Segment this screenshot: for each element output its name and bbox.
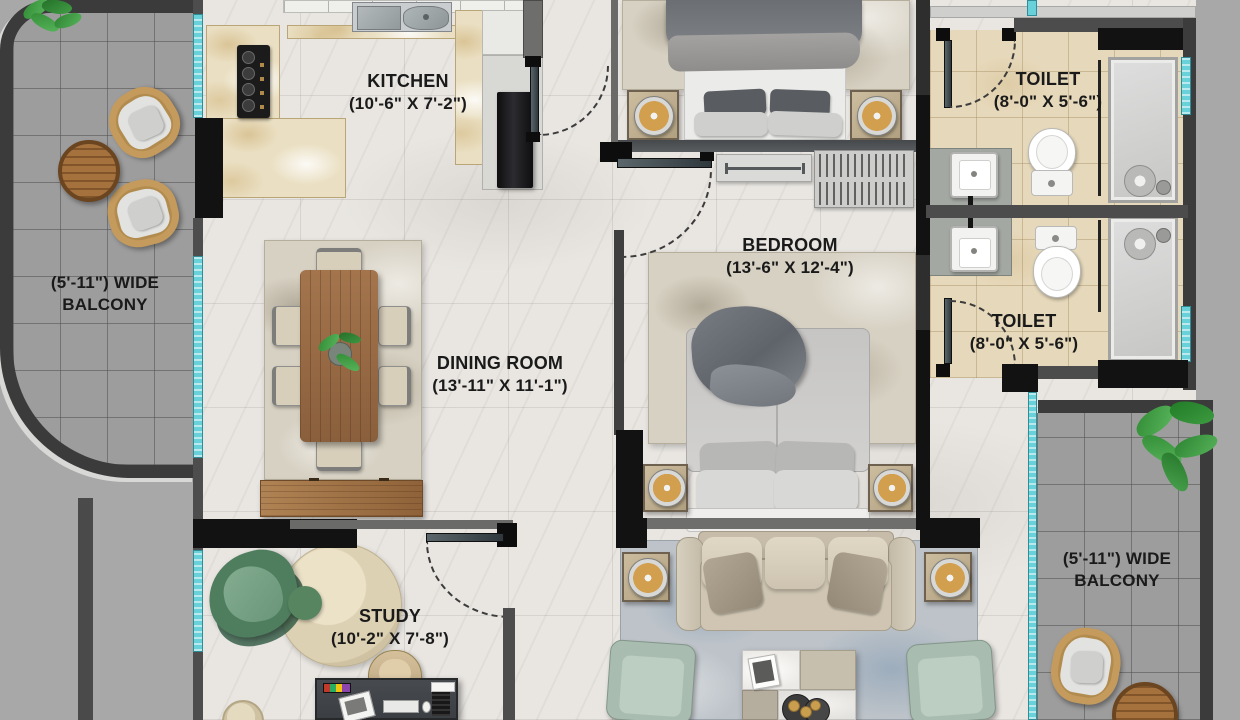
wall-segment	[926, 205, 1188, 218]
throw-pillow	[702, 551, 765, 616]
floor-plan-canvas: KITCHEN (10'-6" X 7'-2") BEDROOM (13'-6"…	[0, 0, 1240, 720]
wall-segment	[195, 118, 223, 218]
basin-drain	[971, 171, 977, 177]
keyboard	[383, 700, 419, 713]
room-dims: (13'-11" X 11'-1")	[420, 375, 580, 397]
kitchen-label: KITCHEN (10'-6" X 7'-2")	[328, 70, 488, 115]
bed-blanket-fold	[668, 32, 861, 71]
cup	[788, 700, 800, 712]
shower-knob	[1156, 180, 1171, 195]
wash-basin	[950, 226, 998, 272]
room-name: TOILET	[968, 68, 1128, 91]
sink-drain	[423, 14, 429, 20]
cup	[810, 700, 821, 711]
door-hinge	[526, 132, 540, 142]
bed-top	[666, 0, 862, 140]
shower-screen	[1098, 220, 1101, 312]
shower-knob	[1156, 228, 1171, 243]
coffee-table-panel	[742, 690, 778, 720]
gas-stove	[237, 45, 270, 118]
shower-drain-head	[1124, 228, 1156, 260]
room-name: KITCHEN	[328, 70, 488, 93]
sideboard-handle	[379, 478, 389, 481]
balcony-line2: BALCONY	[22, 294, 188, 316]
dining-chair	[378, 306, 411, 346]
entry-door-leaf	[530, 66, 539, 136]
bed-pillow	[774, 470, 858, 512]
wardrobe-console	[716, 154, 812, 182]
balcony-right-label: (5'-11") WIDE BALCONY	[1037, 548, 1197, 592]
desk-paper	[431, 682, 455, 692]
armchair-seat	[917, 655, 983, 717]
photo-image	[752, 660, 774, 684]
table-plant	[328, 342, 352, 366]
dining-chair	[316, 438, 362, 471]
bed-main	[686, 306, 868, 532]
dining-label: DINING ROOM (13'-11" X 11'-1")	[420, 352, 580, 397]
throw-pillow	[826, 551, 889, 616]
sink-basin-left	[357, 6, 401, 30]
kitchen-sink	[352, 2, 452, 32]
wc-seat	[1036, 135, 1068, 169]
window-glass	[1181, 57, 1191, 115]
armchair	[605, 639, 696, 720]
room-name: TOILET	[944, 310, 1104, 333]
door-leaf	[426, 533, 504, 542]
room-dims: (8'-0" X 5'-6")	[968, 91, 1128, 113]
room-name: DINING ROOM	[420, 352, 580, 375]
console-handle-cap	[725, 163, 728, 174]
wash-basin	[950, 152, 998, 198]
wall-segment	[611, 0, 618, 142]
pen-tray	[323, 683, 351, 693]
console-handle-cap	[802, 163, 805, 174]
door-hinge	[700, 152, 714, 161]
wall-segment	[1098, 28, 1186, 50]
shower-drain-head	[1124, 165, 1156, 197]
kitchen-counter-corner	[206, 118, 346, 198]
window-glass	[193, 550, 203, 652]
mouse	[422, 701, 431, 713]
wc-flush-button	[1048, 180, 1055, 187]
sideboard-handle	[309, 478, 319, 481]
wall-segment	[930, 6, 1196, 18]
stove-knobs	[260, 53, 264, 109]
burner	[242, 67, 255, 80]
toilet-mid-label: TOILET (8'-0" X 5'-6")	[944, 310, 1104, 355]
study-label: STUDY (10'-2" X 7'-8")	[310, 605, 470, 650]
table-lamp	[857, 96, 897, 136]
toilet-wc	[1033, 246, 1081, 298]
balcony-line1: (5'-11") WIDE	[1037, 548, 1197, 570]
bedroom-label: BEDROOM (13'-6" X 12'-4")	[700, 234, 880, 279]
outdoor-round-table	[58, 140, 120, 202]
wall-segment	[617, 518, 647, 548]
room-name: BEDROOM	[700, 234, 880, 257]
wall-segment	[523, 0, 543, 58]
rack-slats-row	[819, 154, 909, 177]
slatted-rack	[814, 150, 914, 208]
wall-segment	[503, 608, 515, 720]
toilet-wc	[1028, 128, 1076, 176]
coffee-table	[742, 650, 856, 720]
table-lamp	[628, 558, 668, 598]
photo-frame	[747, 654, 780, 690]
wall-segment	[916, 95, 930, 255]
table-lamp	[648, 469, 686, 507]
bed-pillow	[696, 470, 778, 512]
window-glass	[193, 14, 203, 118]
sofa-cushion	[765, 537, 825, 589]
table-lamp	[873, 469, 911, 507]
bed-pillow	[694, 112, 768, 136]
room-name: STUDY	[310, 605, 470, 628]
balcony-line2: BALCONY	[1037, 570, 1197, 592]
bed-pillow	[768, 111, 843, 138]
room-dims: (13'-6" X 12'-4")	[700, 257, 880, 279]
wall-segment	[78, 498, 93, 720]
desk-photo	[338, 691, 375, 720]
door-hinge	[936, 364, 950, 377]
study-desk	[315, 678, 458, 720]
dining-chair	[378, 366, 411, 406]
wc-tank	[1031, 170, 1073, 196]
door-leaf	[617, 158, 712, 168]
window-glass	[1028, 392, 1037, 720]
burner	[242, 99, 255, 112]
desk-speaker	[432, 692, 450, 716]
room-dims: (10'-6" X 7'-2")	[328, 93, 488, 115]
plant	[1132, 402, 1220, 494]
wc-flush-button	[1052, 235, 1059, 242]
balcony-line1: (5'-11") WIDE	[22, 272, 188, 294]
armchair-seat	[619, 655, 685, 717]
wall-segment	[193, 218, 203, 256]
wall-segment	[290, 520, 513, 529]
table-lamp	[634, 96, 674, 136]
console-handle	[727, 167, 801, 170]
coffee-table-panel	[800, 650, 856, 690]
burner	[242, 51, 255, 64]
wall-segment	[1098, 360, 1188, 388]
sideboard	[260, 480, 423, 517]
sofa	[676, 531, 914, 632]
sofa-arm	[888, 537, 916, 631]
wall-segment	[1002, 364, 1038, 392]
wc-seat	[1041, 257, 1073, 291]
balcony-left-label: (5'-11") WIDE BALCONY	[22, 272, 188, 316]
toilet-top-label: TOILET (8'-0" X 5'-6")	[968, 68, 1128, 113]
wall-segment	[916, 330, 930, 530]
armchair	[905, 639, 996, 720]
table-lamp	[930, 558, 970, 598]
basin-drain	[971, 248, 977, 254]
rack-slats-row	[819, 182, 909, 205]
room-dims: (8'-0" X 5'-6")	[944, 333, 1104, 355]
wall-segment	[193, 652, 203, 720]
window-glass	[193, 256, 203, 458]
wall-segment	[193, 0, 203, 14]
room-dims: (10'-2" X 7'-8")	[310, 628, 470, 650]
window-glass	[1181, 306, 1191, 362]
burner	[242, 83, 255, 96]
wall-segment	[614, 230, 624, 435]
window-glass	[1027, 0, 1037, 16]
plant	[22, 0, 82, 36]
